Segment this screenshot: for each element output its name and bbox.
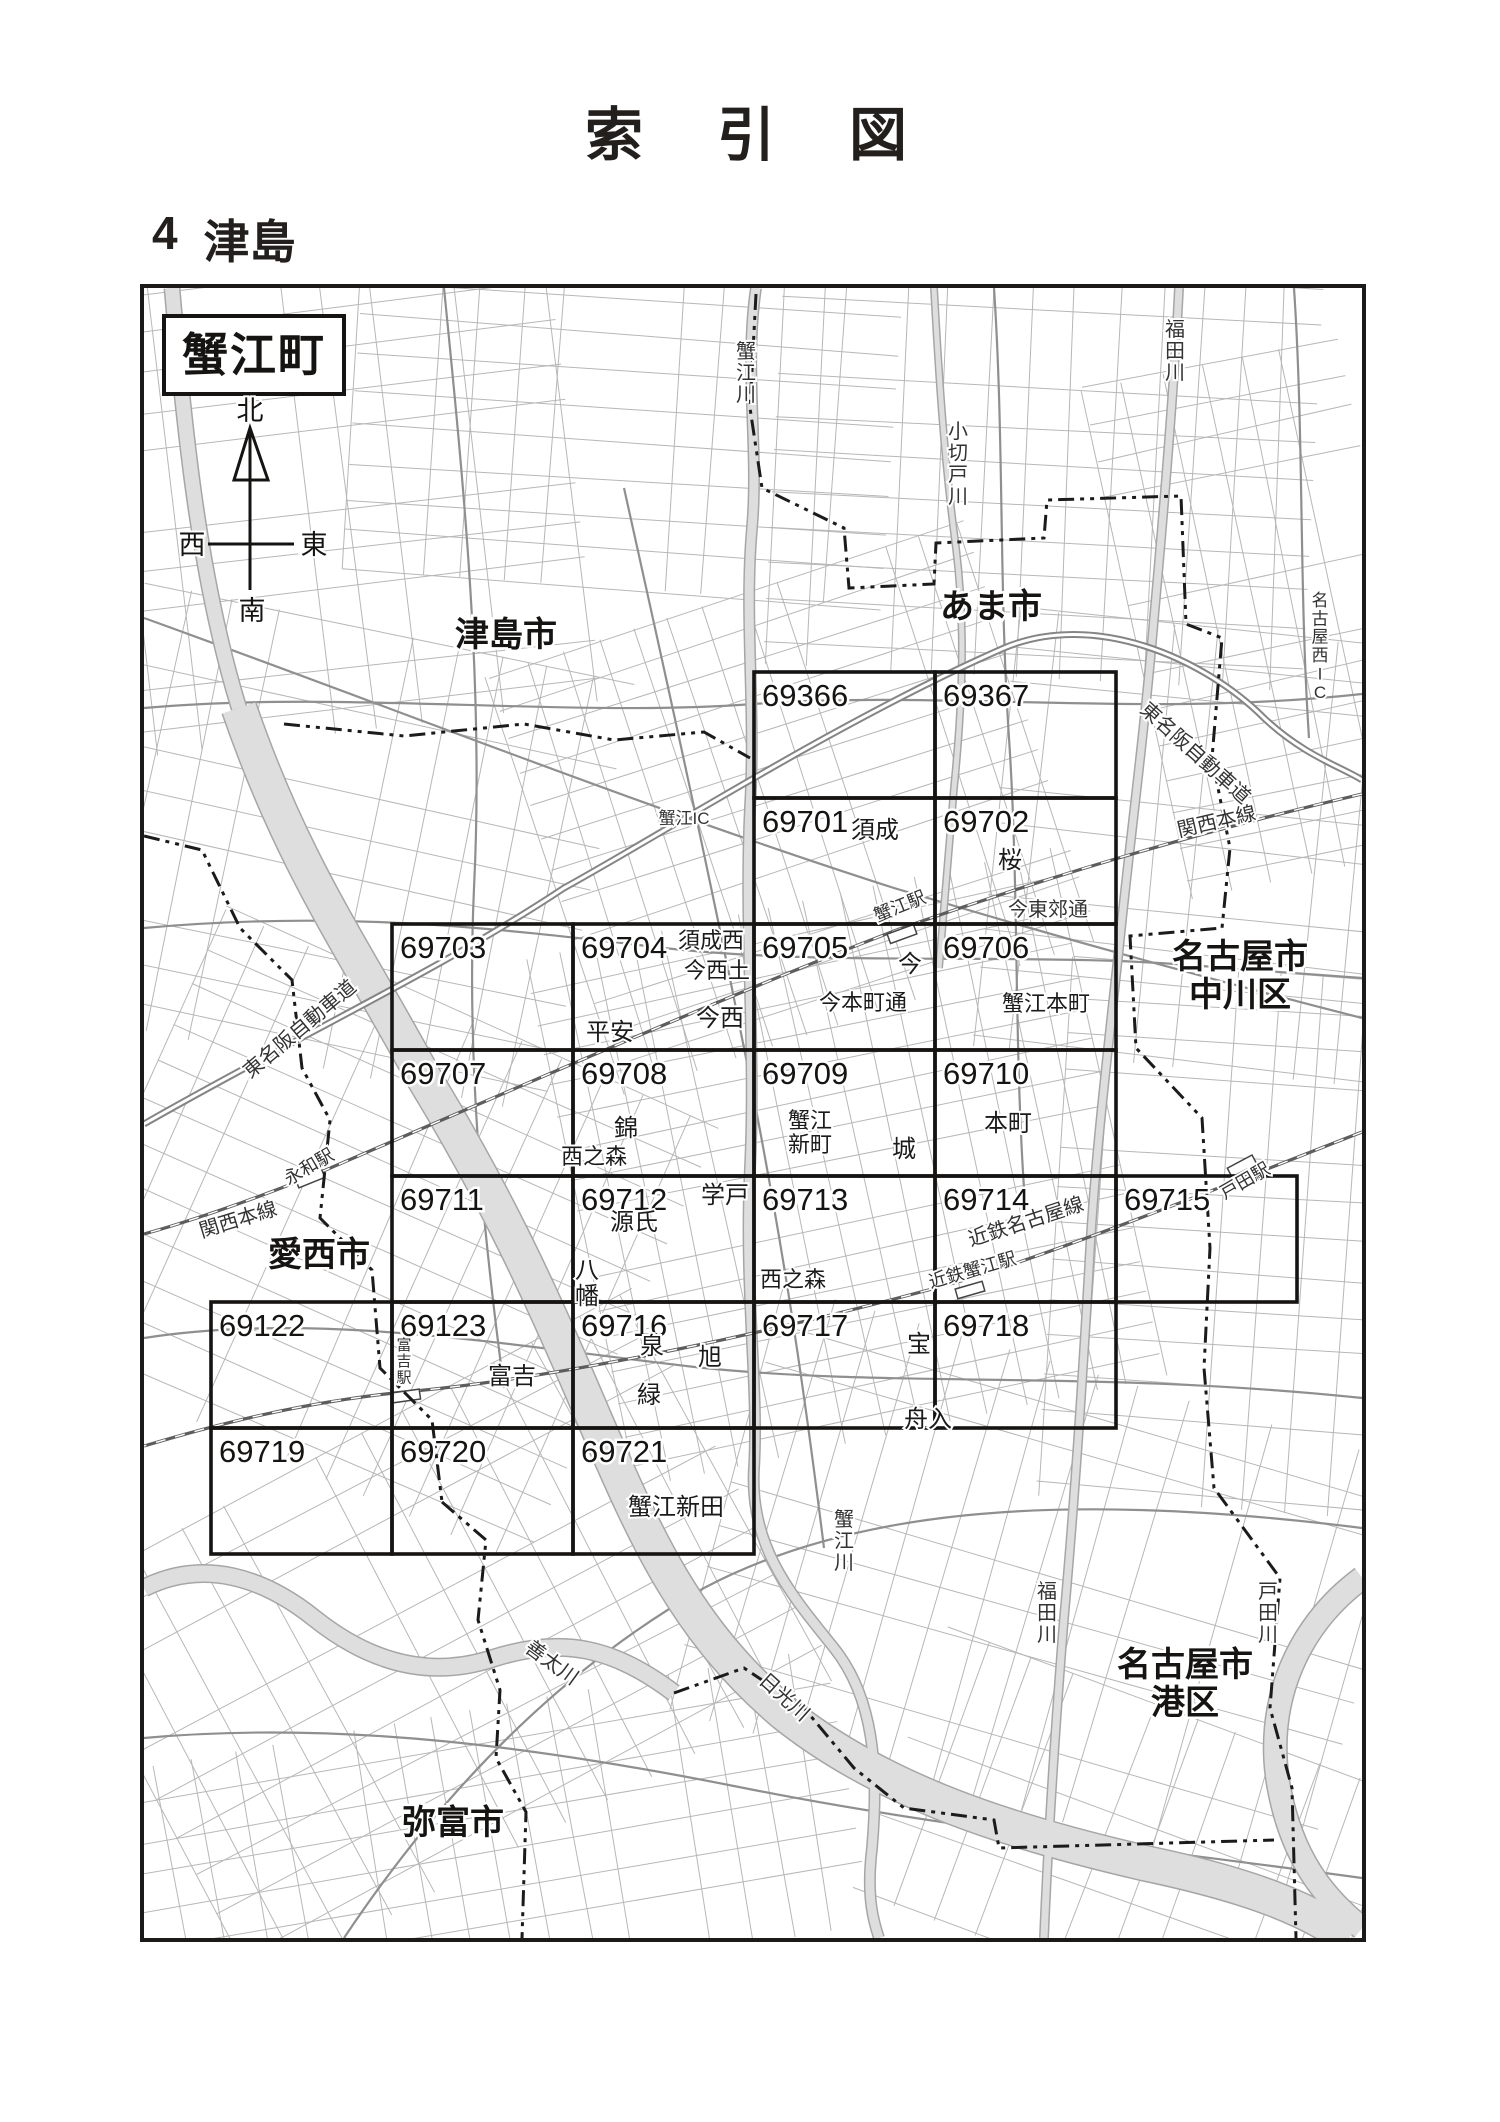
index-cell-number: 69713 bbox=[762, 1182, 848, 1217]
city-label: 弥富市 bbox=[402, 1803, 504, 1842]
place-label: 桜 bbox=[998, 847, 1022, 874]
index-cell-number: 69719 bbox=[219, 1434, 305, 1469]
compass-e: 東 bbox=[301, 530, 328, 560]
index-cell-number: 69702 bbox=[943, 804, 1029, 839]
map-layers: 6936669367697016970269703697046970569706… bbox=[144, 288, 1362, 1938]
place-label: 今西 bbox=[696, 1005, 744, 1032]
place-label: 西之森 bbox=[760, 1267, 826, 1292]
place-label: 旭 bbox=[698, 1344, 722, 1371]
area-name-box: 蟹江町 bbox=[164, 316, 344, 394]
index-cell-number: 69720 bbox=[400, 1434, 486, 1469]
index-cell-number: 69708 bbox=[581, 1056, 667, 1091]
place-label: 須成 bbox=[851, 817, 899, 844]
index-cell-number: 69705 bbox=[762, 930, 848, 965]
place-label: 平安 bbox=[586, 1019, 634, 1046]
line-label: 名古屋西IC bbox=[1312, 591, 1329, 702]
city-label: 名古屋市 bbox=[1117, 1645, 1253, 1684]
place-label: 八幡 bbox=[575, 1257, 599, 1310]
index-cell-number: 69707 bbox=[400, 1056, 486, 1091]
line-label: 戸田川 bbox=[1258, 1581, 1278, 1646]
place-label: 新町 bbox=[788, 1132, 832, 1157]
place-label: 錦 bbox=[614, 1115, 638, 1142]
index-cell-number: 69701 bbox=[762, 804, 848, 839]
place-label: 本町 bbox=[984, 1110, 1032, 1137]
place-label: 緑 bbox=[637, 1382, 661, 1409]
city-label: 愛西市 bbox=[268, 1235, 370, 1274]
line-label: 福田川 bbox=[1037, 1580, 1057, 1646]
page-title: 索 引 図 bbox=[0, 88, 1500, 172]
city-label: 名古屋市 bbox=[1172, 937, 1308, 976]
line-label: 今東郊通 bbox=[1008, 898, 1088, 921]
line-label: 蟹江IC bbox=[659, 809, 710, 828]
place-label: 舟入 bbox=[904, 1406, 952, 1433]
section-heading: 4 津島 bbox=[152, 206, 296, 272]
place-label: 学戸 bbox=[701, 1182, 749, 1209]
place-label: 今西土 bbox=[684, 958, 750, 983]
place-label: 富吉 bbox=[488, 1363, 536, 1390]
place-label: 西之森 bbox=[561, 1144, 627, 1169]
section-number: 4 bbox=[152, 206, 178, 272]
index-cell-number: 69703 bbox=[400, 930, 486, 965]
place-label: 宝 bbox=[907, 1331, 931, 1358]
place-label: 蟹江新田 bbox=[628, 1494, 724, 1521]
index-cell-number: 69366 bbox=[762, 678, 848, 713]
place-label: 蟹江本町 bbox=[1002, 991, 1090, 1016]
section-name: 津島 bbox=[204, 206, 296, 272]
index-cell-number: 69710 bbox=[943, 1056, 1029, 1091]
line-label: 富吉駅 bbox=[396, 1336, 411, 1386]
index-cell-number: 69704 bbox=[581, 930, 667, 965]
index-cell-number: 69714 bbox=[943, 1182, 1029, 1217]
index-cell-number: 69711 bbox=[400, 1182, 484, 1217]
compass-n: 北 bbox=[237, 396, 264, 426]
index-cell-number: 69706 bbox=[943, 930, 1029, 965]
city-label: 津島市 bbox=[455, 615, 557, 654]
compass-w: 西 bbox=[179, 530, 206, 560]
city-label: 港区 bbox=[1151, 1684, 1219, 1722]
line-label: 蟹江川 bbox=[736, 340, 756, 406]
place-label: 今 bbox=[898, 951, 922, 978]
index-map-canvas: 6936669367697016970269703697046970569706… bbox=[144, 288, 1362, 1938]
place-label: 源氏 bbox=[610, 1209, 658, 1236]
line-label: 福田川 bbox=[1165, 318, 1185, 384]
index-cell-number: 69718 bbox=[943, 1308, 1029, 1343]
index-cell-number: 69709 bbox=[762, 1056, 848, 1091]
compass-s: 南 bbox=[239, 596, 266, 626]
index-cell-number: 69367 bbox=[943, 678, 1029, 713]
city-label: あま市 bbox=[940, 587, 1042, 626]
index-map: 6936669367697016970269703697046970569706… bbox=[140, 284, 1366, 1942]
index-cell-number: 69721 bbox=[581, 1434, 667, 1469]
place-label: 今本町通 bbox=[819, 990, 907, 1015]
index-cell-number: 69715 bbox=[1124, 1182, 1210, 1217]
place-label: 須成西 bbox=[678, 928, 744, 953]
line-label: 蟹江川 bbox=[834, 1508, 854, 1574]
place-label: 泉 bbox=[640, 1333, 664, 1360]
line-label: 東名阪自動車道 bbox=[1136, 698, 1255, 809]
place-label: 蟹江 bbox=[788, 1108, 832, 1133]
line-label: 小切戸川 bbox=[948, 420, 968, 508]
index-cell-number: 69122 bbox=[219, 1308, 305, 1343]
index-cell-number: 69123 bbox=[400, 1308, 486, 1343]
place-label: 城 bbox=[892, 1136, 916, 1163]
area-name-label: 蟹江町 bbox=[182, 329, 326, 381]
city-label: 中川区 bbox=[1189, 976, 1291, 1014]
index-cell-number: 69717 bbox=[762, 1308, 848, 1343]
